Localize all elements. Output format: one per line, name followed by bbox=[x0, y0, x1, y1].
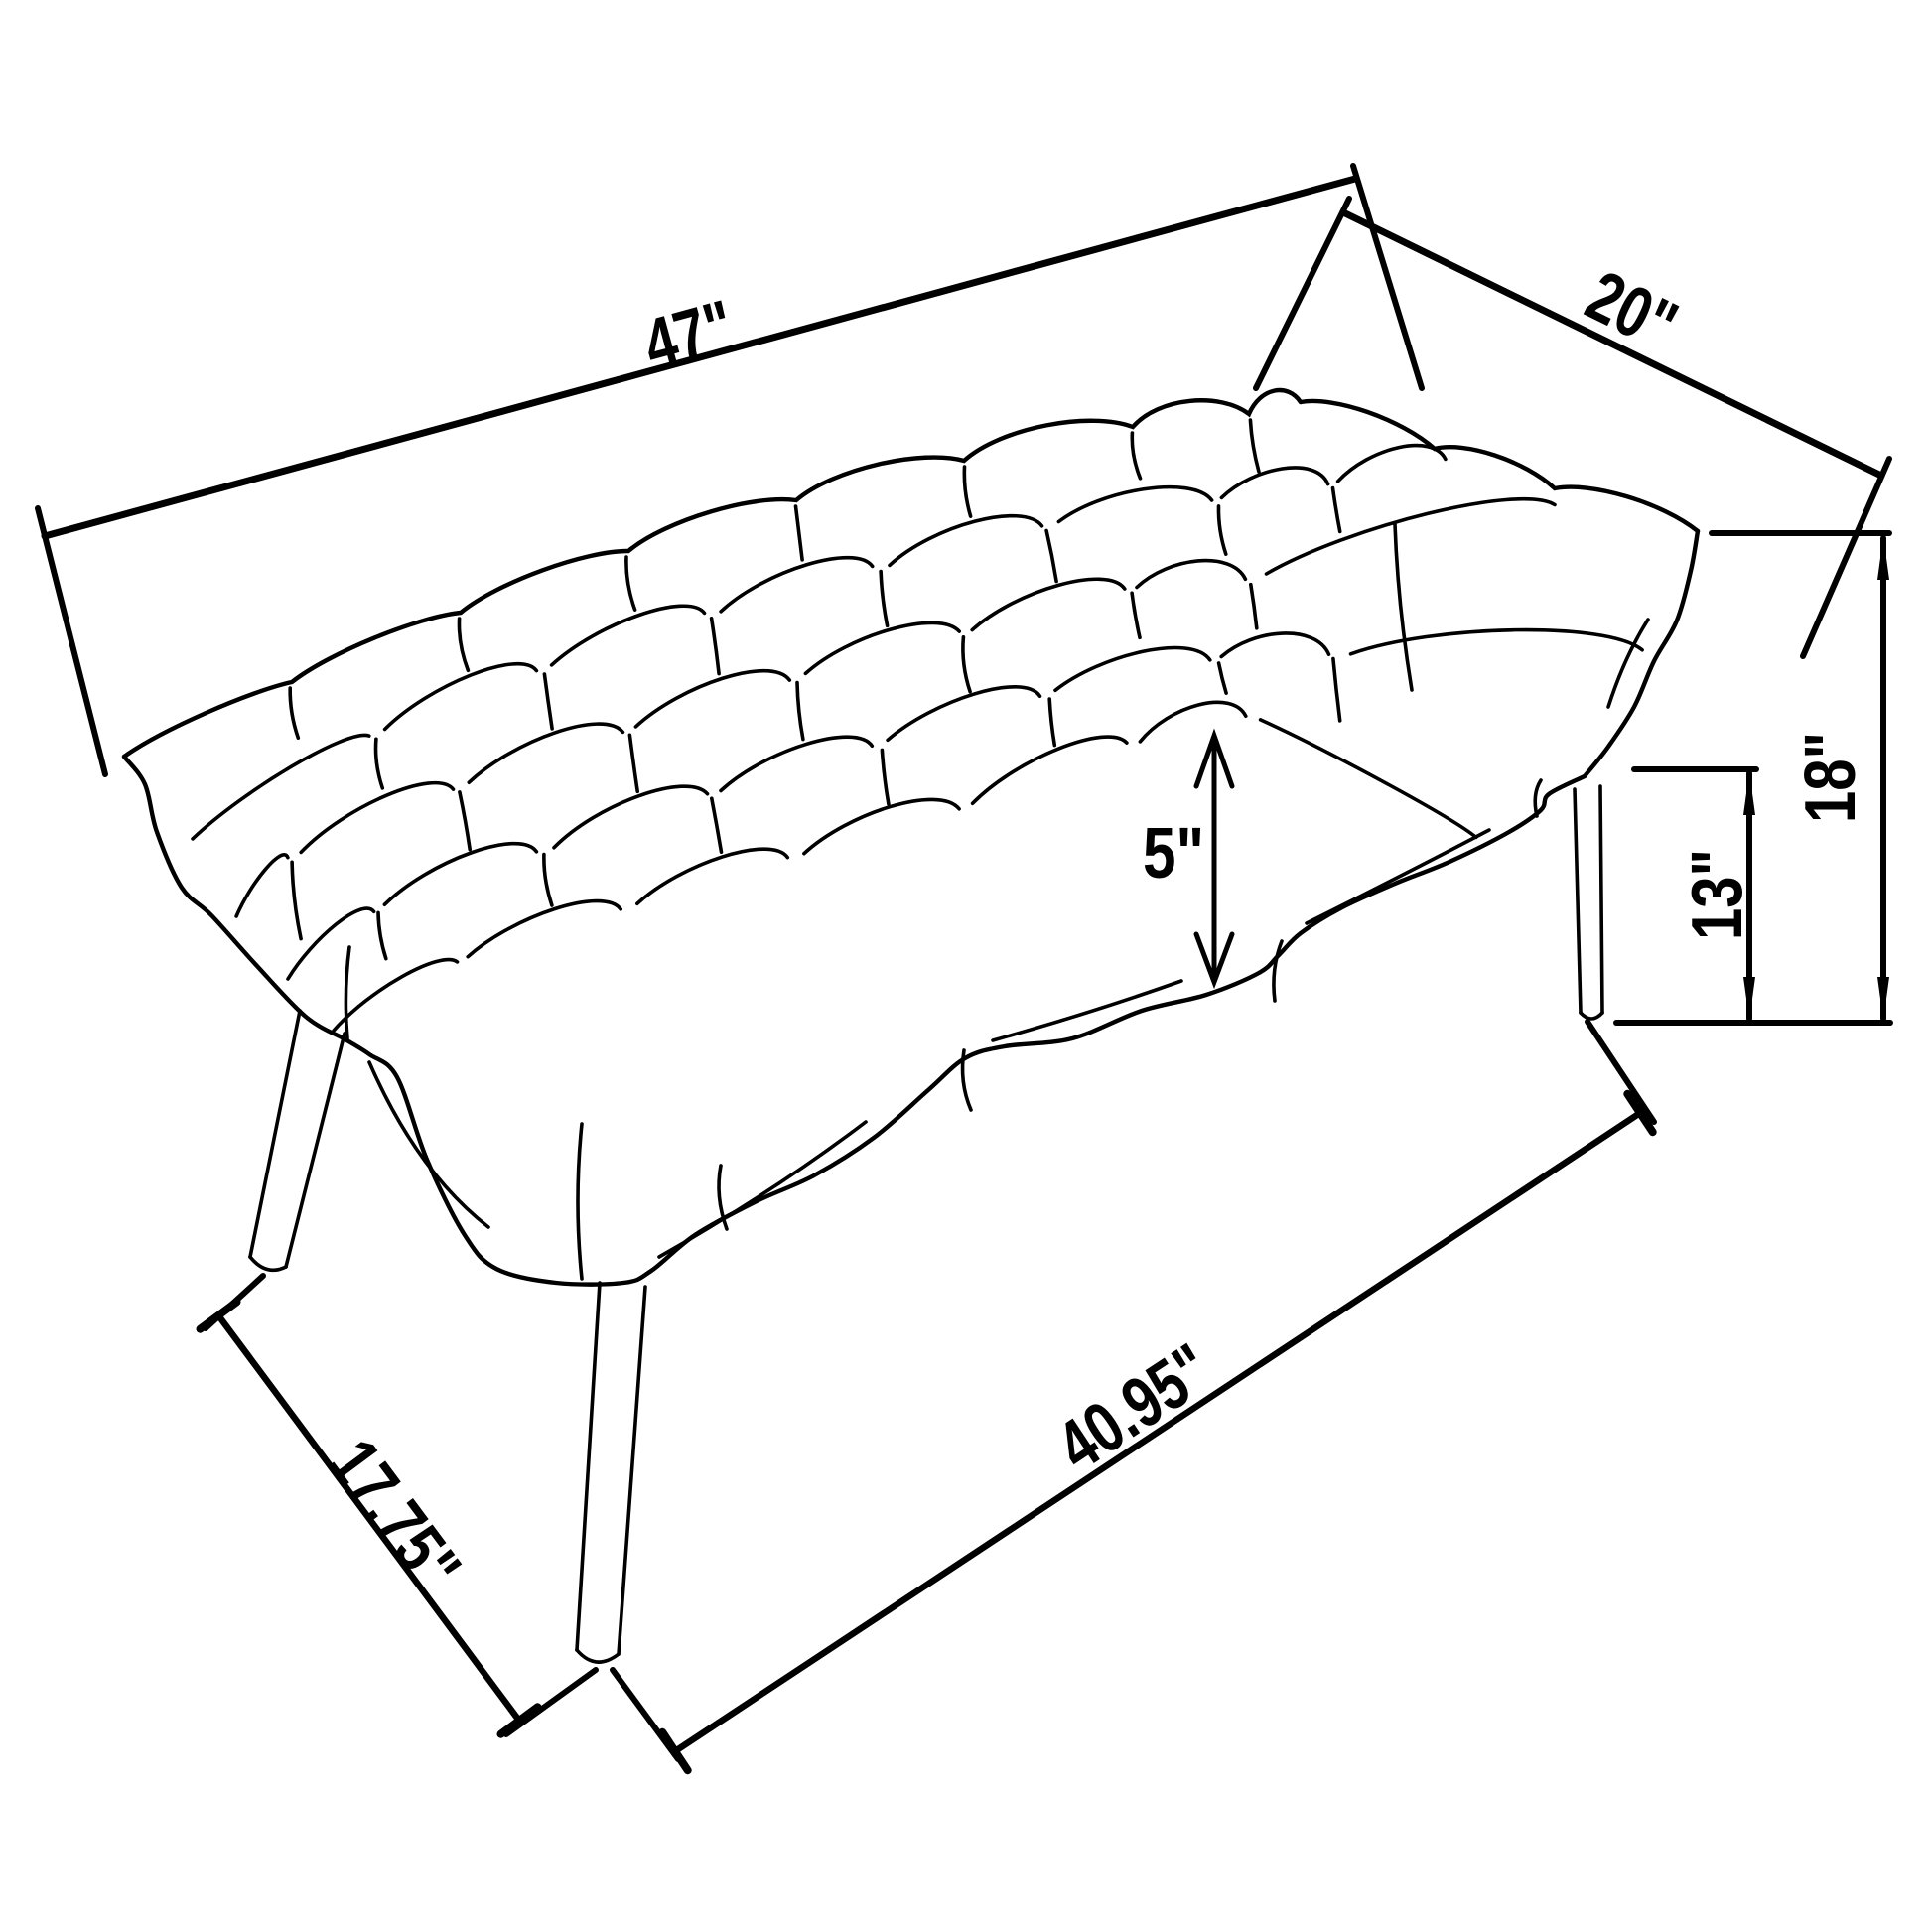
svg-text:18": 18" bbox=[1791, 732, 1870, 823]
svg-text:13": 13" bbox=[1678, 849, 1757, 940]
svg-text:5": 5" bbox=[1143, 814, 1204, 894]
